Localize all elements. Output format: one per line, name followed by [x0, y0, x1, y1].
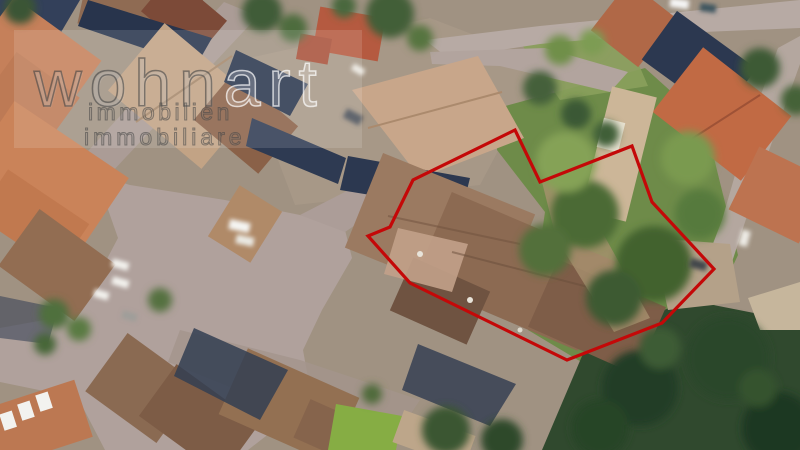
tree-canopy — [362, 384, 382, 404]
tree-canopy — [67, 317, 91, 341]
brand-text-secondary: art — [224, 46, 325, 120]
tree-canopy — [519, 224, 571, 276]
tree-canopy — [675, 189, 725, 239]
tree-canopy — [39, 299, 69, 329]
watermark-line-immobilien: immobilien — [88, 101, 233, 124]
tree-canopy — [545, 35, 575, 65]
watermark-line-immobiliare: immobiliare — [84, 126, 246, 149]
roof-vent — [518, 328, 523, 333]
tree-canopy — [593, 121, 619, 147]
tree-canopy — [586, 270, 642, 326]
tree-canopy — [661, 131, 715, 185]
tree-canopy — [148, 288, 172, 312]
aerial-photo: wohnart immobilien immobiliare — [0, 0, 800, 450]
tree-canopy — [34, 333, 56, 355]
tree-canopy — [739, 369, 777, 407]
tree-canopy — [740, 48, 780, 88]
roof-vent — [417, 251, 423, 257]
tree-canopy — [579, 29, 605, 55]
roof-vent — [467, 297, 473, 303]
tree-canopy — [407, 25, 433, 51]
tree-canopy — [523, 71, 557, 105]
tree-canopy — [639, 327, 681, 369]
tree-canopy — [561, 99, 591, 129]
